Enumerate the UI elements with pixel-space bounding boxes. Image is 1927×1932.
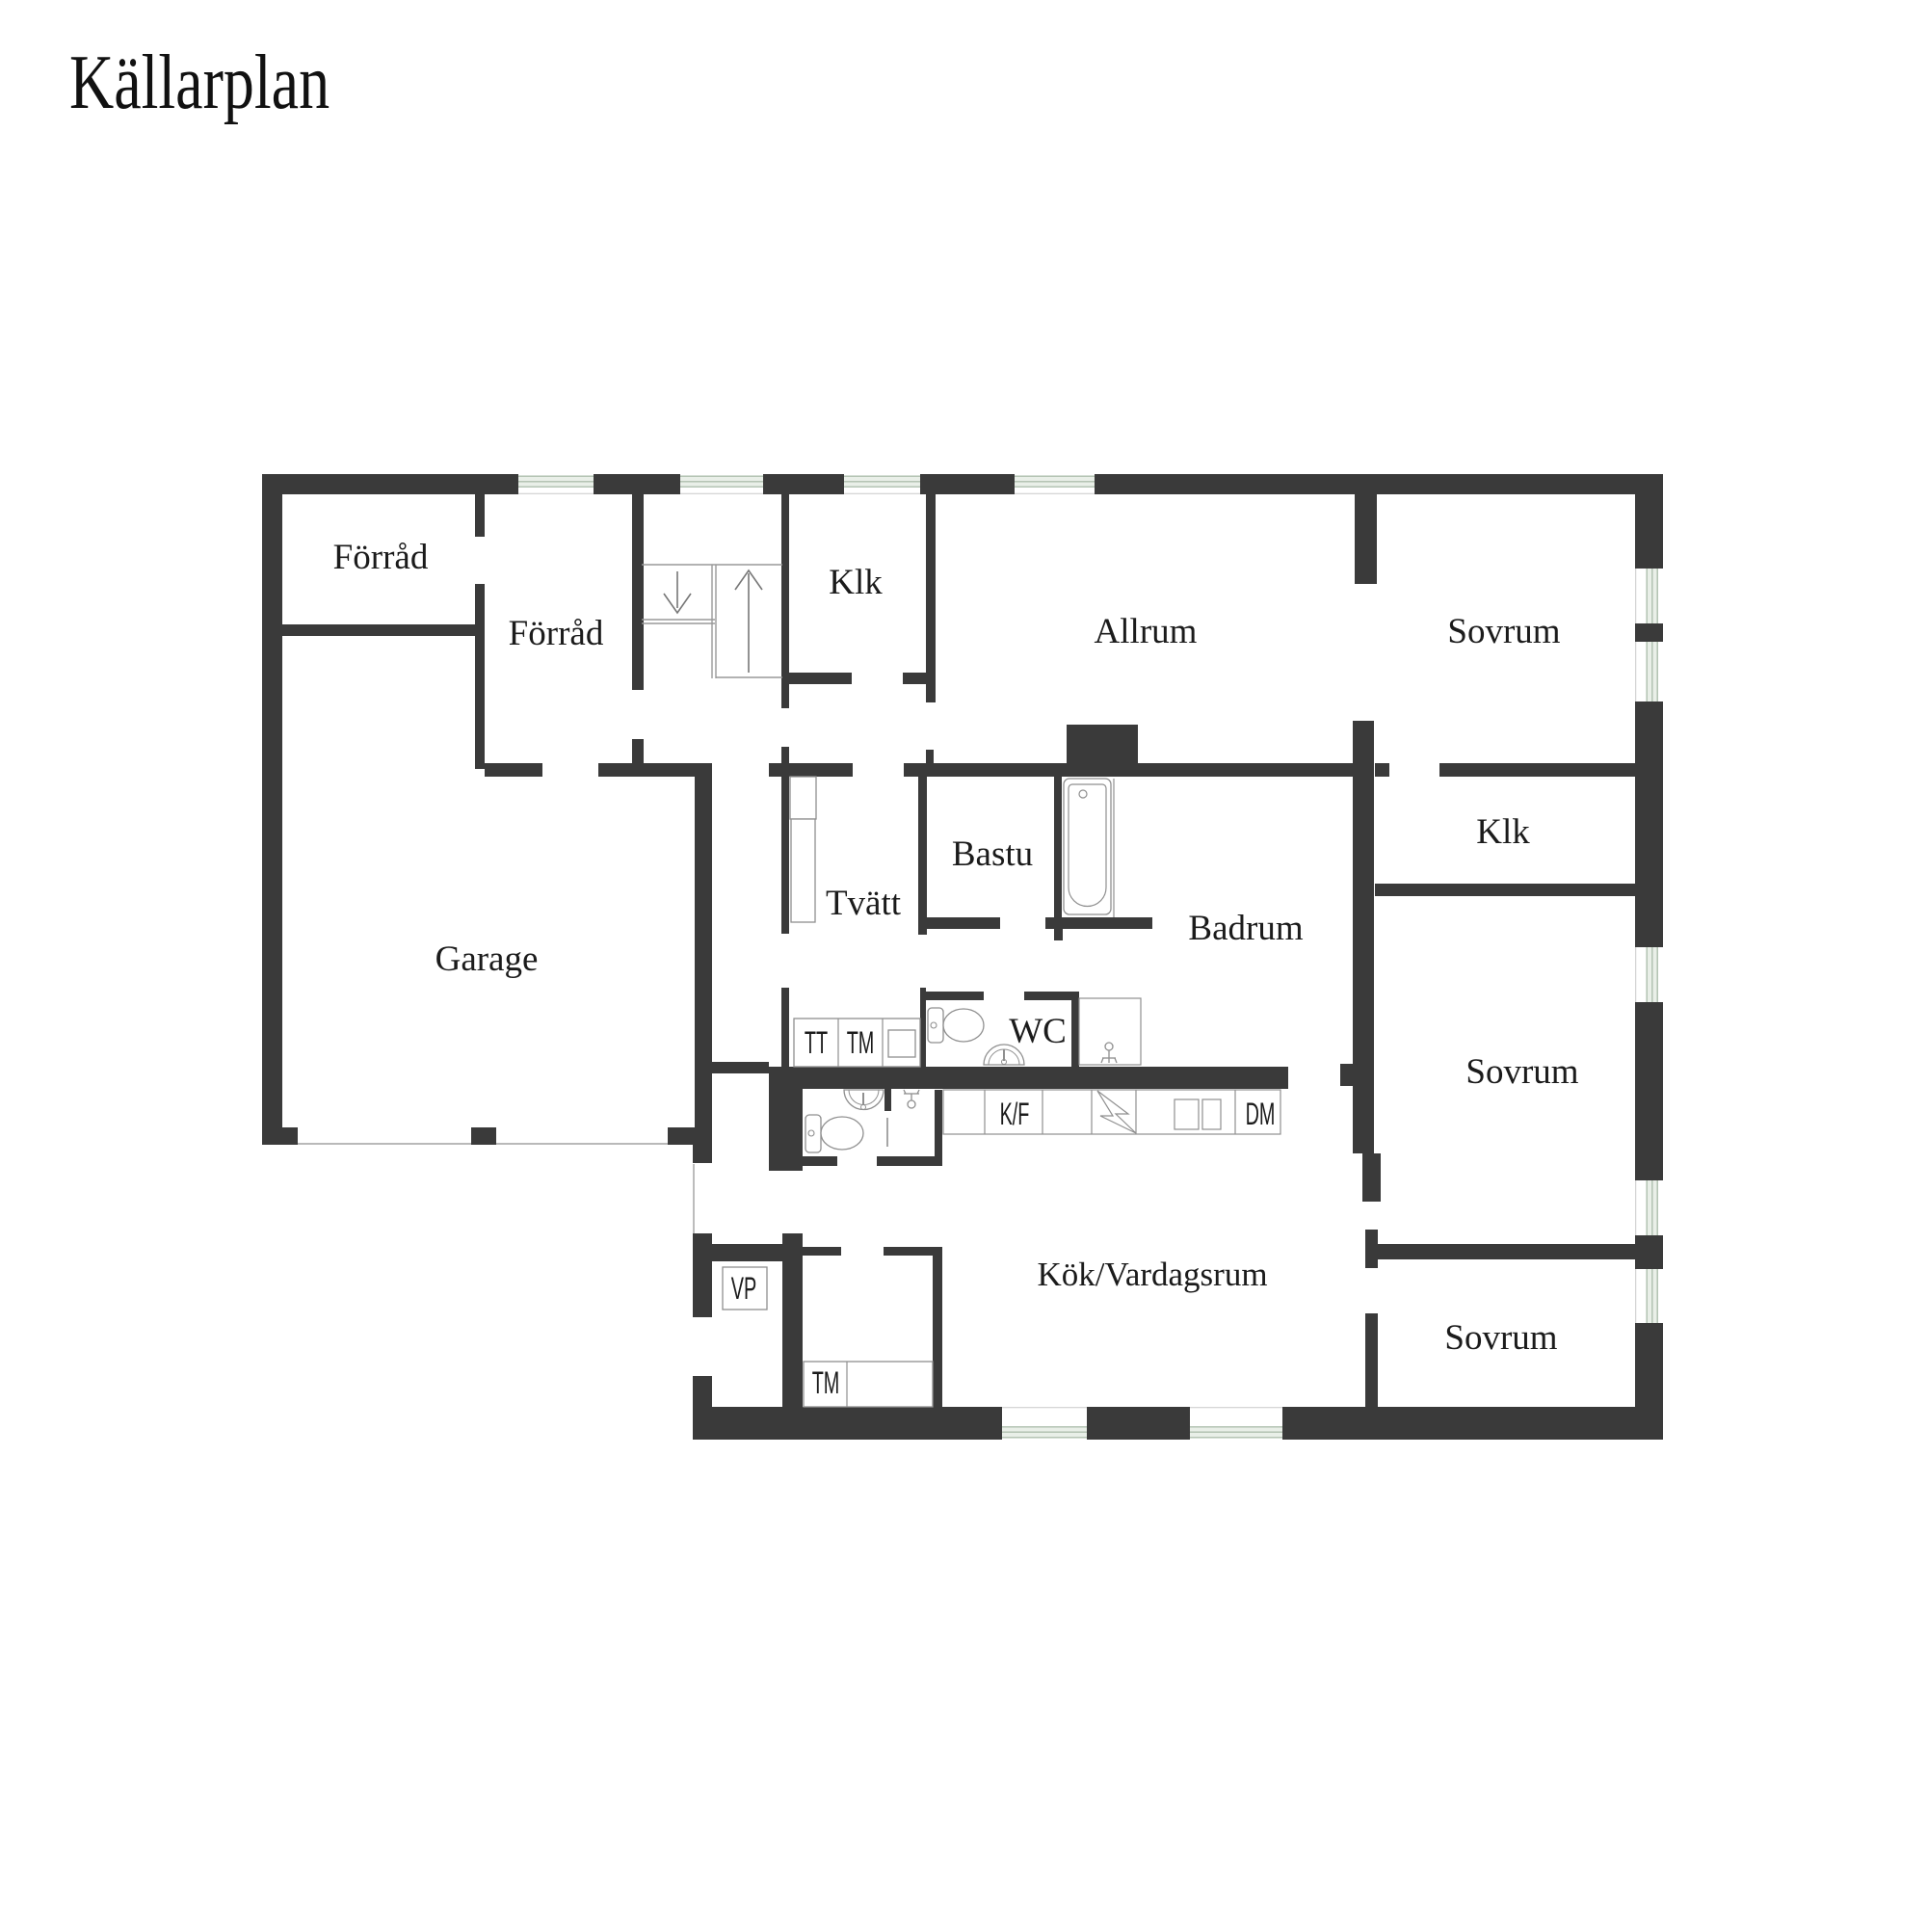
svg-text:Badrum: Badrum xyxy=(1188,909,1303,948)
svg-text:VP: VP xyxy=(731,1271,756,1306)
svg-text:Bastu: Bastu xyxy=(952,834,1033,874)
svg-text:Källarplan: Källarplan xyxy=(69,39,330,124)
svg-text:Sovrum: Sovrum xyxy=(1465,1052,1578,1092)
svg-text:Förråd: Förråd xyxy=(509,614,604,653)
svg-text:TM: TM xyxy=(812,1365,840,1400)
svg-text:DM: DM xyxy=(1246,1097,1276,1131)
svg-text:K/F: K/F xyxy=(1000,1097,1030,1131)
svg-text:Förråd: Förråd xyxy=(333,538,429,577)
svg-text:Tvätt: Tvätt xyxy=(826,884,902,923)
svg-text:Sovrum: Sovrum xyxy=(1447,612,1560,651)
svg-text:TT: TT xyxy=(805,1025,828,1060)
svg-text:Klk: Klk xyxy=(1476,812,1530,852)
svg-text:Garage: Garage xyxy=(436,940,539,979)
svg-text:Kök/Vardagsrum: Kök/Vardagsrum xyxy=(1037,1256,1267,1293)
svg-text:Allrum: Allrum xyxy=(1095,612,1198,651)
svg-text:Sovrum: Sovrum xyxy=(1444,1318,1557,1358)
svg-text:TM: TM xyxy=(847,1025,875,1060)
svg-text:Klk: Klk xyxy=(829,563,883,602)
svg-text:WC: WC xyxy=(1009,1012,1067,1051)
